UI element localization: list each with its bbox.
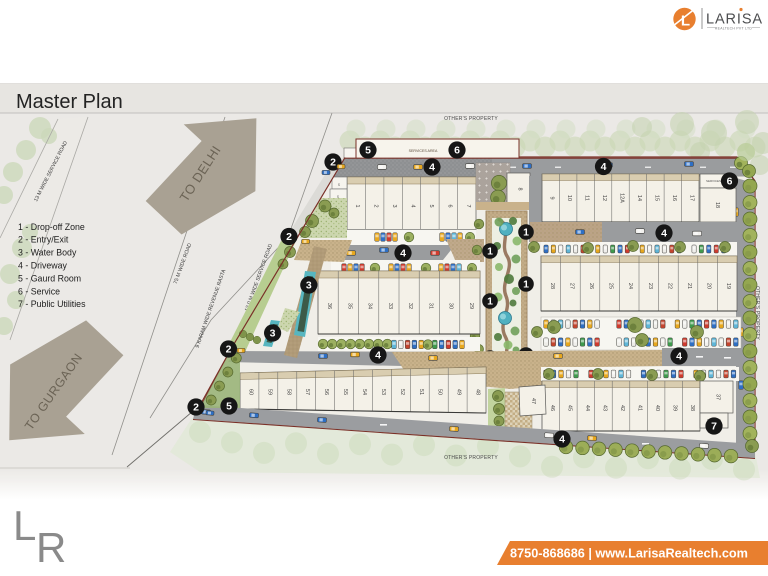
svg-text:31: 31 (427, 303, 433, 309)
svg-text:Master Plan: Master Plan (16, 91, 123, 113)
svg-text:L: L (681, 13, 690, 30)
svg-text:2: 2 (330, 157, 336, 169)
svg-text:2: 2 (373, 204, 379, 207)
svg-text:6: 6 (727, 176, 733, 188)
svg-text:5 - Gaurd Room: 5 - Gaurd Room (18, 273, 81, 283)
svg-text:5: 5 (226, 401, 232, 413)
svg-text:60: 60 (248, 389, 254, 395)
svg-text:REALTECH PVT LTD: REALTECH PVT LTD (715, 26, 752, 30)
svg-text:4: 4 (400, 248, 406, 260)
svg-text:22: 22 (666, 283, 672, 289)
svg-text:OTHER'S PROPERTY: OTHER'S PROPERTY (444, 455, 498, 461)
svg-text:40: 40 (654, 405, 660, 411)
svg-text:11: 11 (584, 195, 590, 201)
svg-text:28: 28 (549, 283, 555, 289)
svg-text:OTHER'S PROPERTY: OTHER'S PROPERTY (444, 116, 498, 122)
svg-text:4: 4 (601, 161, 607, 173)
svg-text:37: 37 (715, 394, 721, 400)
svg-text:7: 7 (465, 204, 471, 207)
svg-text:33: 33 (387, 303, 393, 309)
svg-text:25: 25 (608, 283, 614, 289)
svg-text:44: 44 (584, 405, 590, 411)
svg-text:LARISA: LARISA (706, 12, 763, 28)
svg-text:26: 26 (588, 283, 594, 289)
svg-text:15: 15 (653, 195, 659, 201)
svg-text:55: 55 (342, 389, 348, 395)
svg-text:8: 8 (517, 187, 523, 190)
svg-text:46: 46 (549, 405, 555, 411)
svg-text:SERVICES: SERVICES (706, 179, 721, 183)
svg-text:27: 27 (568, 283, 574, 289)
svg-text:1: 1 (354, 204, 360, 207)
svg-text:5: 5 (365, 145, 371, 157)
svg-text:57: 57 (304, 389, 310, 395)
svg-text:12: 12 (601, 195, 607, 201)
svg-text:4 - Driveway: 4 - Driveway (18, 261, 67, 271)
svg-text:32: 32 (407, 303, 413, 309)
svg-text:2: 2 (226, 344, 232, 356)
svg-text:1: 1 (487, 296, 493, 308)
svg-text:35: 35 (346, 303, 352, 309)
svg-text:7: 7 (711, 421, 717, 433)
svg-text:50: 50 (437, 389, 443, 395)
svg-text:4: 4 (429, 162, 435, 174)
svg-text:5: 5 (428, 204, 434, 207)
svg-text:2: 2 (286, 231, 292, 243)
svg-text:36: 36 (326, 303, 332, 309)
svg-text:1: 1 (523, 227, 529, 239)
svg-text:12A: 12A (619, 193, 625, 203)
svg-text:3: 3 (306, 280, 312, 292)
svg-text:38: 38 (689, 405, 695, 411)
svg-text:OTHER'S PROPERTY: OTHER'S PROPERTY (754, 286, 760, 340)
svg-text:49: 49 (456, 389, 462, 395)
svg-text:14: 14 (636, 195, 642, 201)
svg-text:45: 45 (566, 405, 572, 411)
svg-text:42: 42 (619, 405, 625, 411)
svg-text:8750-868686 | www.LarisaRealte: 8750-868686 | www.LarisaRealtech.com (510, 547, 748, 561)
svg-text:21: 21 (686, 283, 692, 289)
svg-text:6: 6 (454, 145, 460, 157)
svg-text:29: 29 (468, 303, 474, 309)
svg-text:43: 43 (601, 405, 607, 411)
svg-text:59: 59 (266, 389, 272, 395)
svg-text:2: 2 (193, 402, 199, 414)
svg-text:10: 10 (566, 195, 572, 201)
svg-text:34: 34 (367, 303, 373, 309)
svg-text:1: 1 (523, 279, 529, 291)
svg-text:4: 4 (410, 204, 416, 207)
svg-text:54: 54 (361, 389, 367, 395)
svg-text:23: 23 (647, 283, 653, 289)
svg-text:51: 51 (418, 389, 424, 395)
svg-text:58: 58 (285, 389, 291, 395)
svg-text:30: 30 (448, 303, 454, 309)
svg-text:47: 47 (530, 398, 536, 404)
svg-text:4: 4 (661, 228, 667, 240)
svg-text:56: 56 (323, 389, 329, 395)
svg-text:41: 41 (637, 405, 643, 411)
svg-text:3: 3 (391, 204, 397, 207)
svg-text:7 - Public Utilities: 7 - Public Utilities (18, 299, 86, 309)
svg-text:2 - Entry/Exit: 2 - Entry/Exit (18, 235, 69, 245)
svg-text:3 - Water Body: 3 - Water Body (18, 248, 77, 258)
svg-text:S: S (338, 183, 340, 187)
svg-text:1: 1 (487, 246, 493, 258)
svg-text:17: 17 (688, 195, 694, 201)
svg-text:48: 48 (475, 389, 481, 395)
svg-text:SERVICES AREA: SERVICES AREA (409, 149, 438, 153)
svg-text:52: 52 (399, 389, 405, 395)
svg-text:16: 16 (671, 195, 677, 201)
svg-text:4: 4 (375, 350, 381, 362)
svg-text:R: R (36, 524, 66, 571)
svg-text:53: 53 (380, 389, 386, 395)
svg-text:6: 6 (446, 204, 452, 207)
svg-text:6 - Service: 6 - Service (18, 286, 60, 296)
svg-text:24: 24 (627, 283, 633, 289)
svg-text:L: L (13, 502, 36, 549)
svg-text:9: 9 (549, 196, 555, 199)
svg-text:19: 19 (725, 283, 731, 289)
svg-text:20: 20 (706, 283, 712, 289)
svg-text:1 - Drop-off Zone: 1 - Drop-off Zone (18, 222, 85, 232)
svg-text:4: 4 (676, 351, 682, 363)
svg-text:18: 18 (714, 202, 720, 208)
svg-text:4: 4 (559, 434, 565, 446)
svg-text:3: 3 (270, 328, 276, 340)
svg-text:39: 39 (672, 405, 678, 411)
